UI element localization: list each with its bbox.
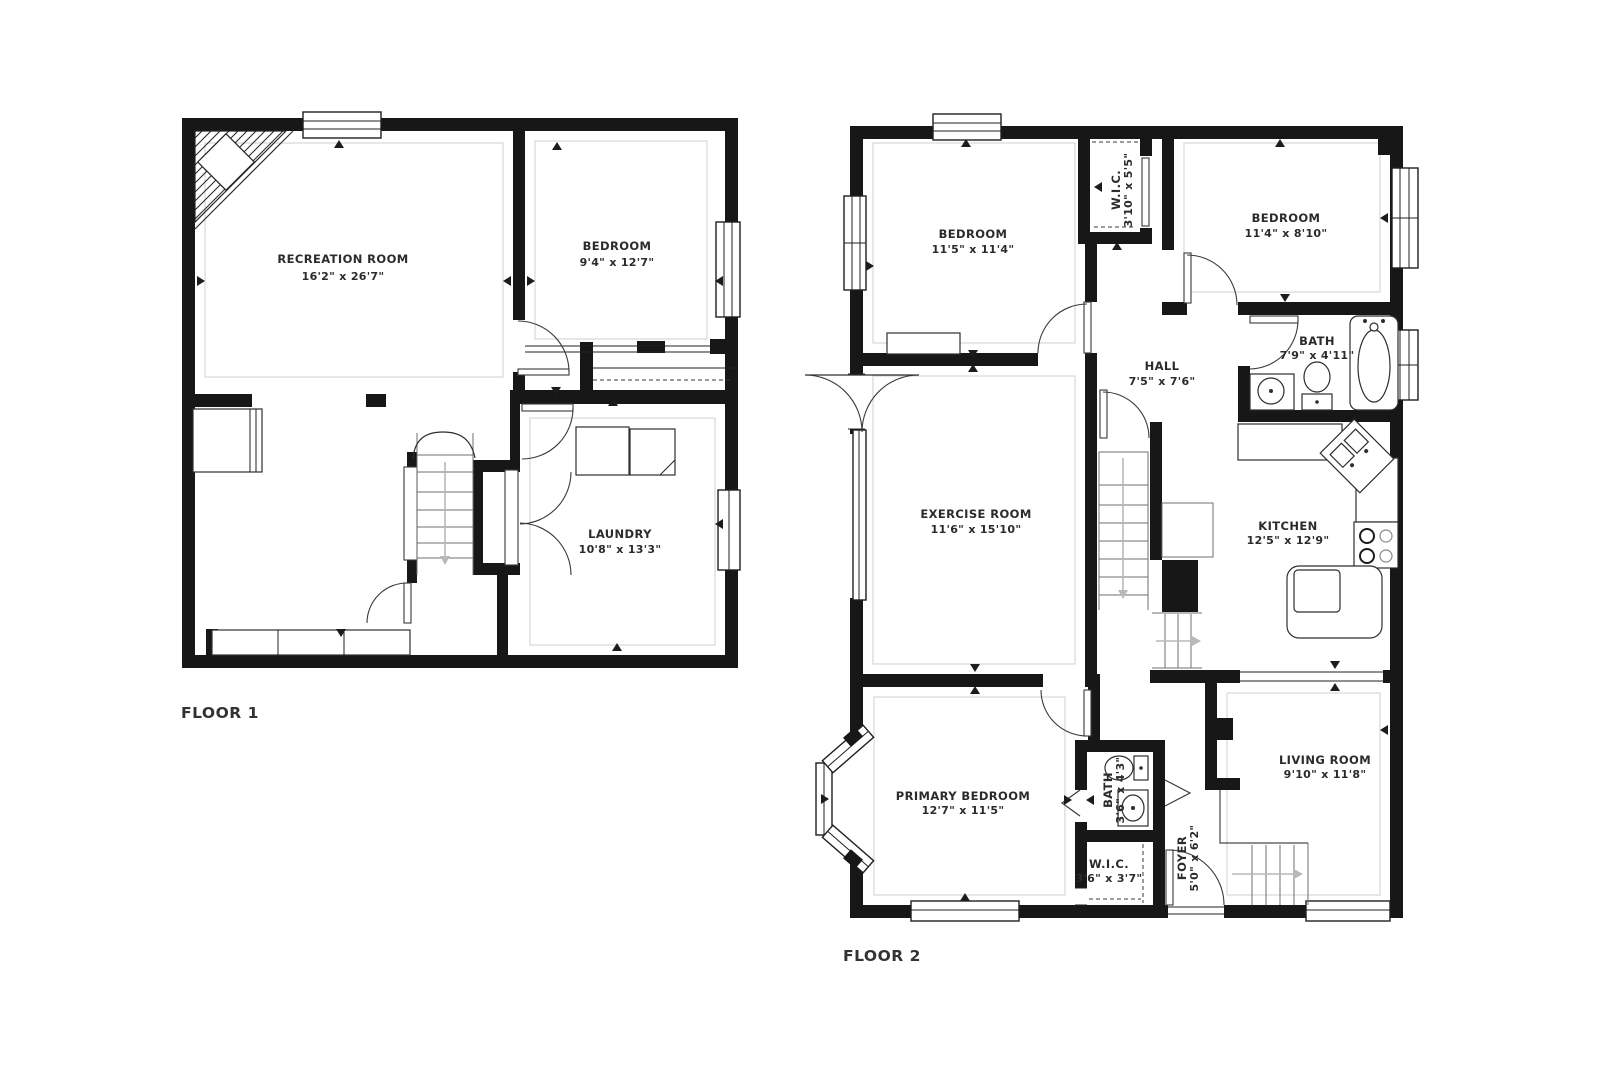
door-bedroom2 xyxy=(1184,253,1237,305)
svg-text:RECREATION ROOM: RECREATION ROOM xyxy=(277,252,408,266)
room-label-laundry: LAUNDRY 10'8" x 13'3" xyxy=(579,527,662,556)
svg-text:LIVING ROOM: LIVING ROOM xyxy=(1279,753,1371,767)
svg-text:9'4" x 12'7": 9'4" x 12'7" xyxy=(580,256,655,269)
room-label-bedroom-f1: BEDROOM 9'4" x 12'7" xyxy=(580,239,655,269)
window-bedroom1-top xyxy=(933,114,1001,140)
window-laundry-right xyxy=(718,490,740,570)
svg-text:11'6" x 15'10": 11'6" x 15'10" xyxy=(931,523,1022,536)
stairs-entry xyxy=(1220,790,1308,905)
svg-text:BEDROOM: BEDROOM xyxy=(583,239,652,253)
room-label-wic-top: W.I.C. 3'10" x 5'5" xyxy=(1109,153,1135,228)
svg-text:11'4" x 8'10": 11'4" x 8'10" xyxy=(1245,227,1328,240)
cabinet xyxy=(193,409,262,472)
window-primary-bottom xyxy=(911,901,1019,921)
bed-headboard xyxy=(887,333,960,354)
bench-seat xyxy=(212,630,410,655)
floorplan-page: RECREATION ROOM 16'2" x 26'7" BEDROOM 9'… xyxy=(0,0,1600,1066)
toilet xyxy=(1302,362,1332,410)
svg-text:HALL: HALL xyxy=(1145,359,1180,373)
floor1-plan: RECREATION ROOM 16'2" x 26'7" BEDROOM 9'… xyxy=(181,112,740,722)
svg-text:12'7" x 11'5": 12'7" x 11'5" xyxy=(922,804,1005,817)
room-label-primary: PRIMARY BEDROOM 12'7" x 11'5" xyxy=(896,789,1030,817)
svg-text:7'5" x 7'6": 7'5" x 7'6" xyxy=(1129,375,1196,388)
svg-text:BATH: BATH xyxy=(1101,772,1115,808)
floor2-caption: FLOOR 2 xyxy=(843,947,921,965)
window-living-bottom xyxy=(1306,901,1390,921)
room-label-bedroom1: BEDROOM 11'5" x 11'4" xyxy=(932,227,1015,256)
window-bedroom2-right xyxy=(1392,168,1418,268)
washer xyxy=(576,427,629,475)
vanity-sink xyxy=(1250,374,1294,410)
living-kitchen-opening xyxy=(1240,672,1383,681)
room-label-bedroom2: BEDROOM 11'4" x 8'10" xyxy=(1245,211,1328,240)
svg-text:7'9" x 4'11": 7'9" x 4'11" xyxy=(1280,349,1355,362)
kitchen-counter xyxy=(1238,419,1398,522)
bathtub xyxy=(1350,316,1398,410)
door-hall-stairs xyxy=(1100,390,1149,438)
window-bedroom1-left xyxy=(844,196,866,290)
closet-bifold-doors xyxy=(505,470,571,575)
opening-chevron-foyer xyxy=(1165,780,1190,806)
svg-text:3'10" x 5'5": 3'10" x 5'5" xyxy=(1122,153,1135,228)
svg-text:11'5" x 11'4": 11'5" x 11'4" xyxy=(932,243,1015,256)
svg-text:3'6" x 3'7": 3'6" x 3'7" xyxy=(1076,872,1143,885)
floor1-walls xyxy=(182,118,738,668)
svg-text:16'2" x 26'7": 16'2" x 26'7" xyxy=(302,270,385,283)
door-rec-lower xyxy=(367,583,411,623)
svg-text:W.I.C.: W.I.C. xyxy=(1089,857,1129,871)
svg-text:10'8" x 13'3": 10'8" x 13'3" xyxy=(579,543,662,556)
svg-text:W.I.C.: W.I.C. xyxy=(1109,170,1123,210)
svg-text:FOYER: FOYER xyxy=(1175,836,1189,880)
room-label-exercise: EXERCISE ROOM 11'6" x 15'10" xyxy=(920,507,1031,536)
svg-text:3'6" x 4'3": 3'6" x 4'3" xyxy=(1114,757,1127,824)
floor2-plan: BEDROOM 11'5" x 11'4" W.I.C. 3'10" x 5'5… xyxy=(805,114,1418,965)
door-bedroom1 xyxy=(1038,302,1091,353)
stove xyxy=(1354,522,1398,568)
kitchen-island xyxy=(1287,566,1382,638)
svg-text:PRIMARY BEDROOM: PRIMARY BEDROOM xyxy=(896,789,1030,803)
fireplace xyxy=(195,131,293,229)
svg-text:5'0" x 6'2": 5'0" x 6'2" xyxy=(1188,825,1201,892)
room-label-kitchen: KITCHEN 12'5" x 12'9" xyxy=(1247,519,1330,547)
svg-text:12'5" x 12'9": 12'5" x 12'9" xyxy=(1247,534,1330,547)
room-label-foyer: FOYER 5'0" x 6'2" xyxy=(1175,825,1201,892)
room-label-recreation: RECREATION ROOM 16'2" x 26'7" xyxy=(277,252,408,283)
floorplan-drawing: RECREATION ROOM 16'2" x 26'7" BEDROOM 9'… xyxy=(0,0,1600,1066)
stair-closet xyxy=(1162,503,1213,557)
floor1-caption: FLOOR 1 xyxy=(181,704,259,722)
svg-text:KITCHEN: KITCHEN xyxy=(1258,519,1317,533)
room-label-living: LIVING ROOM 9'10" x 11'8" xyxy=(1279,753,1371,781)
dryer xyxy=(630,429,675,475)
svg-text:EXERCISE ROOM: EXERCISE ROOM xyxy=(920,507,1031,521)
svg-text:LAUNDRY: LAUNDRY xyxy=(588,527,652,541)
room-label-hall: HALL 7'5" x 7'6" xyxy=(1129,359,1196,388)
window-recreation-top xyxy=(303,112,381,138)
french-doors-left xyxy=(805,374,919,432)
svg-text:BEDROOM: BEDROOM xyxy=(1252,211,1321,225)
door-bedroom-f1 xyxy=(518,321,569,375)
svg-text:9'10" x 11'8": 9'10" x 11'8" xyxy=(1284,768,1367,781)
room-label-bath-top: BATH 7'9" x 4'11" xyxy=(1280,334,1355,362)
svg-text:BATH: BATH xyxy=(1299,334,1335,348)
window-bedroom-right xyxy=(716,222,740,317)
window-exercise-left xyxy=(853,430,866,600)
svg-text:BEDROOM: BEDROOM xyxy=(939,227,1008,241)
